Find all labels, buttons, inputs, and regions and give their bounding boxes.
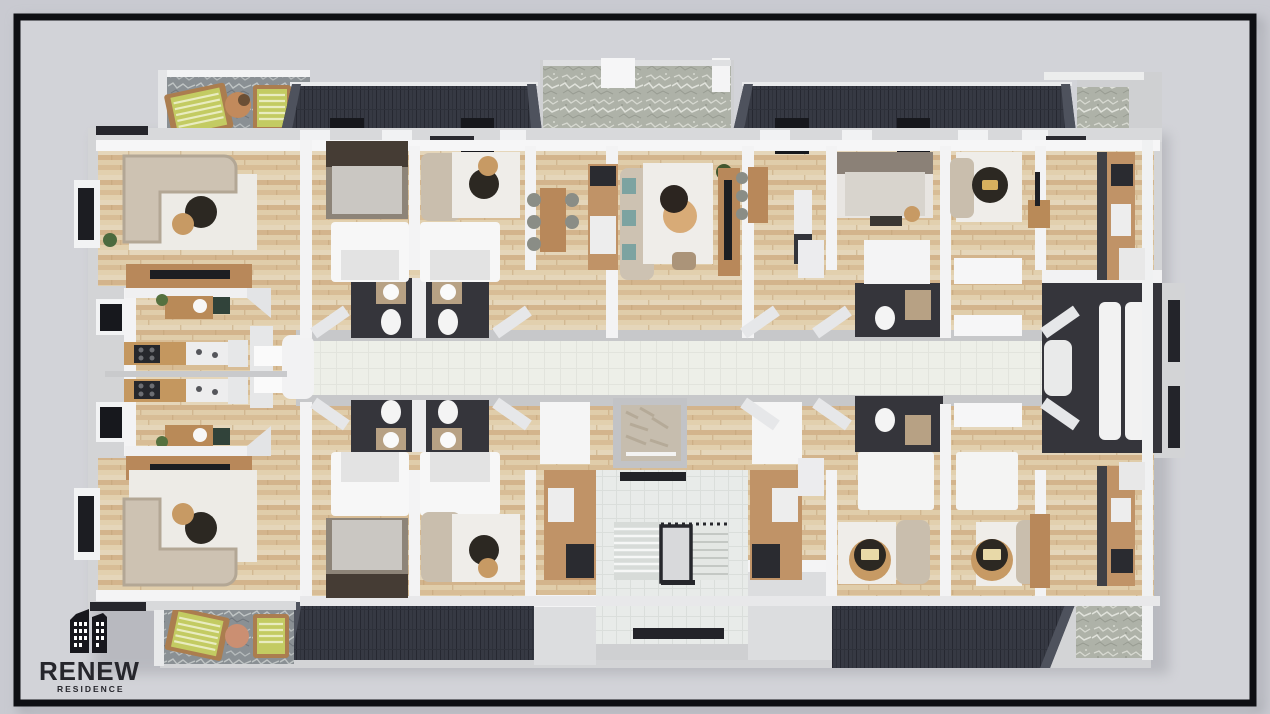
svg-text:RESIDENCE: RESIDENCE: [57, 684, 125, 694]
svg-text:RENEW: RENEW: [39, 656, 140, 686]
